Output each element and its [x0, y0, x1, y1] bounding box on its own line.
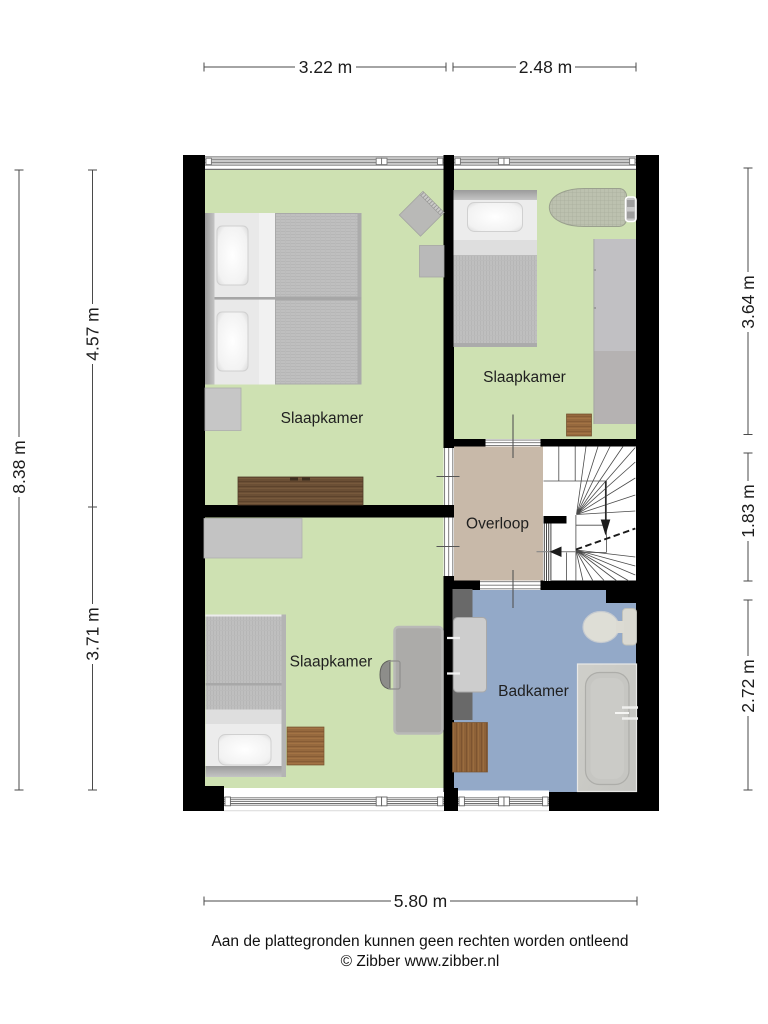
svg-text:Overloop: Overloop [466, 516, 529, 533]
svg-text:3.64 m: 3.64 m [738, 275, 758, 329]
svg-text:Aan de plattegronden kunnen ge: Aan de plattegronden kunnen geen rechten… [211, 933, 628, 950]
svg-text:3.22 m: 3.22 m [299, 57, 353, 77]
svg-text:Badkamer: Badkamer [498, 683, 569, 700]
svg-text:Slaapkamer: Slaapkamer [483, 369, 566, 386]
svg-text:5.80 m: 5.80 m [394, 891, 448, 911]
svg-text:Slaapkamer: Slaapkamer [290, 654, 373, 671]
svg-text:© Zibber www.zibber.nl: © Zibber www.zibber.nl [341, 953, 500, 970]
svg-text:3.71 m: 3.71 m [83, 607, 103, 661]
svg-text:1.83 m: 1.83 m [738, 484, 758, 538]
svg-text:4.57 m: 4.57 m [83, 307, 103, 361]
svg-text:2.48 m: 2.48 m [519, 57, 573, 77]
svg-text:Slaapkamer: Slaapkamer [281, 410, 364, 427]
svg-text:8.38 m: 8.38 m [9, 440, 29, 494]
svg-text:2.72 m: 2.72 m [738, 659, 758, 713]
